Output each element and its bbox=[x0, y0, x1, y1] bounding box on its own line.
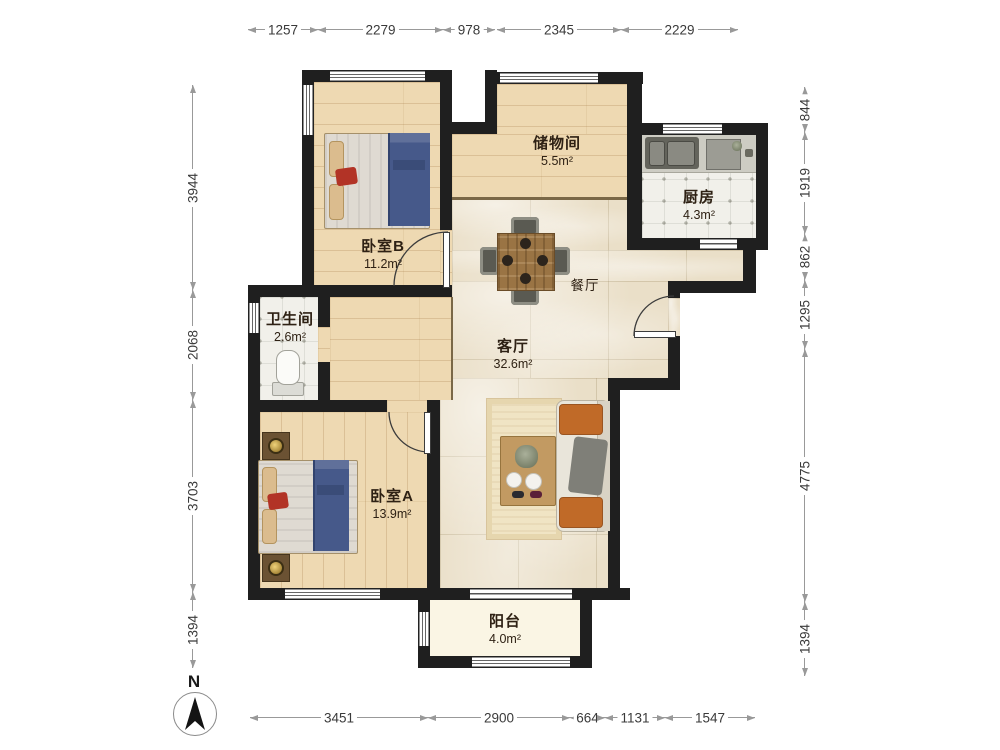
throw-blanket bbox=[568, 436, 609, 496]
dimension-left: 3944 bbox=[185, 85, 201, 290]
plate bbox=[537, 255, 548, 266]
wall bbox=[627, 238, 700, 250]
door-leaf bbox=[634, 331, 676, 338]
duvet-fold bbox=[317, 485, 344, 495]
room-area: 5.5m² bbox=[533, 154, 581, 168]
room-name: 客厅 bbox=[494, 335, 533, 356]
table-lamp bbox=[268, 438, 284, 454]
living-room-floor bbox=[452, 281, 668, 378]
dimension-left: 2068 bbox=[185, 290, 201, 400]
north-arrow-icon bbox=[174, 693, 216, 735]
plant bbox=[515, 445, 538, 468]
floor-transition bbox=[452, 197, 627, 200]
room-label-bedroom-a: 卧室A 13.9m² bbox=[370, 485, 414, 521]
room-name: 卫生间 bbox=[266, 308, 314, 329]
wall bbox=[627, 72, 642, 250]
room-name: 卧室A bbox=[370, 485, 414, 506]
dimension-top: 2279 bbox=[318, 22, 443, 38]
room-name: 餐厅 bbox=[571, 274, 600, 294]
room-label-bathroom: 卫生间 2.6m² bbox=[266, 308, 314, 344]
dimension-right: 844 bbox=[797, 87, 813, 132]
floor-plan: 卧室B 11.2m² 储物间 5.5m² 厨房 4.3m² 卫生间 2.6m² … bbox=[0, 0, 1000, 750]
window bbox=[302, 85, 314, 135]
dimension-bottom: 3451 bbox=[250, 710, 428, 726]
red-accent-pillow bbox=[335, 167, 358, 187]
duvet bbox=[388, 133, 430, 226]
wall bbox=[248, 400, 387, 412]
table-lamp bbox=[268, 560, 284, 576]
floor-transition bbox=[451, 297, 453, 400]
wall bbox=[318, 362, 330, 400]
plant bbox=[732, 141, 742, 151]
kitchen-counter bbox=[642, 135, 756, 173]
hallway-floor bbox=[330, 297, 452, 400]
dimension-right: 1394 bbox=[797, 602, 813, 676]
decor-plate bbox=[525, 473, 542, 490]
nightstand bbox=[262, 554, 290, 582]
room-label-balcony: 阳台 4.0m² bbox=[489, 610, 521, 646]
wall bbox=[756, 123, 768, 250]
wall bbox=[440, 134, 452, 230]
room-label-dining: 餐厅 bbox=[571, 274, 600, 294]
dimension-top: 1257 bbox=[248, 22, 318, 38]
window bbox=[285, 588, 380, 600]
dimension-bottom: 2900 bbox=[428, 710, 570, 726]
door-leaf bbox=[443, 232, 450, 288]
room-label-living: 客厅 32.6m² bbox=[494, 335, 533, 371]
dimension-bottom: 664 bbox=[570, 710, 605, 726]
compass bbox=[173, 692, 217, 736]
toilet bbox=[276, 350, 300, 385]
room-name: 储物间 bbox=[533, 132, 581, 153]
window bbox=[248, 303, 260, 333]
double-bed-a bbox=[258, 460, 358, 554]
pillow bbox=[329, 184, 344, 220]
dimension-right: 862 bbox=[797, 234, 813, 280]
double-bed-b bbox=[324, 133, 430, 229]
window bbox=[472, 656, 570, 668]
sink-bowl bbox=[649, 141, 665, 166]
room-area: 2.6m² bbox=[266, 330, 314, 344]
room-name: 卧室B bbox=[361, 235, 405, 256]
room-name: 阳台 bbox=[489, 610, 521, 631]
room-label-storage: 储物间 5.5m² bbox=[533, 132, 581, 168]
duvet-fold bbox=[393, 160, 425, 170]
balcony-sliding-door bbox=[470, 588, 572, 600]
room-area: 11.2m² bbox=[361, 257, 405, 271]
plate bbox=[520, 273, 531, 284]
nightstand bbox=[262, 432, 290, 460]
sofa bbox=[556, 400, 610, 532]
dimension-bottom: 1547 bbox=[665, 710, 755, 726]
pillow bbox=[262, 509, 277, 544]
bathroom-door-threshold bbox=[318, 327, 330, 362]
decor-plate bbox=[506, 472, 522, 488]
dimension-top: 2229 bbox=[621, 22, 738, 38]
plate bbox=[502, 255, 513, 266]
bottle bbox=[512, 491, 524, 498]
dimension-top: 978 bbox=[443, 22, 495, 38]
wall bbox=[572, 588, 630, 600]
room-name: 厨房 bbox=[683, 186, 715, 207]
dimension-top: 2345 bbox=[497, 22, 621, 38]
room-area: 32.6m² bbox=[494, 357, 533, 371]
storage-floor bbox=[497, 84, 627, 134]
wall bbox=[668, 293, 680, 298]
duvet bbox=[313, 460, 349, 551]
dimension-left: 1394 bbox=[185, 592, 201, 668]
coffee-table bbox=[500, 436, 556, 506]
room-area: 13.9m² bbox=[370, 507, 414, 521]
wall bbox=[318, 297, 330, 327]
red-accent-pillow bbox=[267, 492, 289, 511]
room-label-kitchen: 厨房 4.3m² bbox=[683, 186, 715, 222]
window bbox=[663, 123, 722, 135]
room-area: 4.3m² bbox=[683, 208, 715, 222]
sink-bowl bbox=[667, 141, 695, 166]
sofa-pillow bbox=[559, 404, 603, 435]
bedroom-a-door-threshold bbox=[387, 400, 427, 412]
dining-table bbox=[497, 233, 555, 291]
compass-north-label: N bbox=[183, 672, 205, 692]
dimension-left: 3703 bbox=[185, 400, 201, 592]
plate bbox=[520, 238, 531, 249]
counter-item bbox=[745, 149, 753, 157]
kitchen-door-threshold bbox=[700, 238, 737, 250]
dimension-bottom: 1131 bbox=[605, 710, 665, 726]
wall bbox=[248, 285, 452, 297]
wall bbox=[580, 600, 592, 668]
window bbox=[418, 612, 430, 646]
dimension-right: 1919 bbox=[797, 132, 813, 234]
window bbox=[330, 70, 425, 82]
dimension-right: 1295 bbox=[797, 280, 813, 349]
sofa-pillow bbox=[559, 497, 603, 528]
room-area: 4.0m² bbox=[489, 632, 521, 646]
room-label-bedroom-b: 卧室B 11.2m² bbox=[361, 235, 405, 271]
bottle bbox=[530, 491, 542, 498]
window bbox=[500, 72, 598, 84]
wall bbox=[668, 281, 756, 293]
door-leaf bbox=[424, 412, 431, 454]
dimension-right: 4775 bbox=[797, 349, 813, 602]
